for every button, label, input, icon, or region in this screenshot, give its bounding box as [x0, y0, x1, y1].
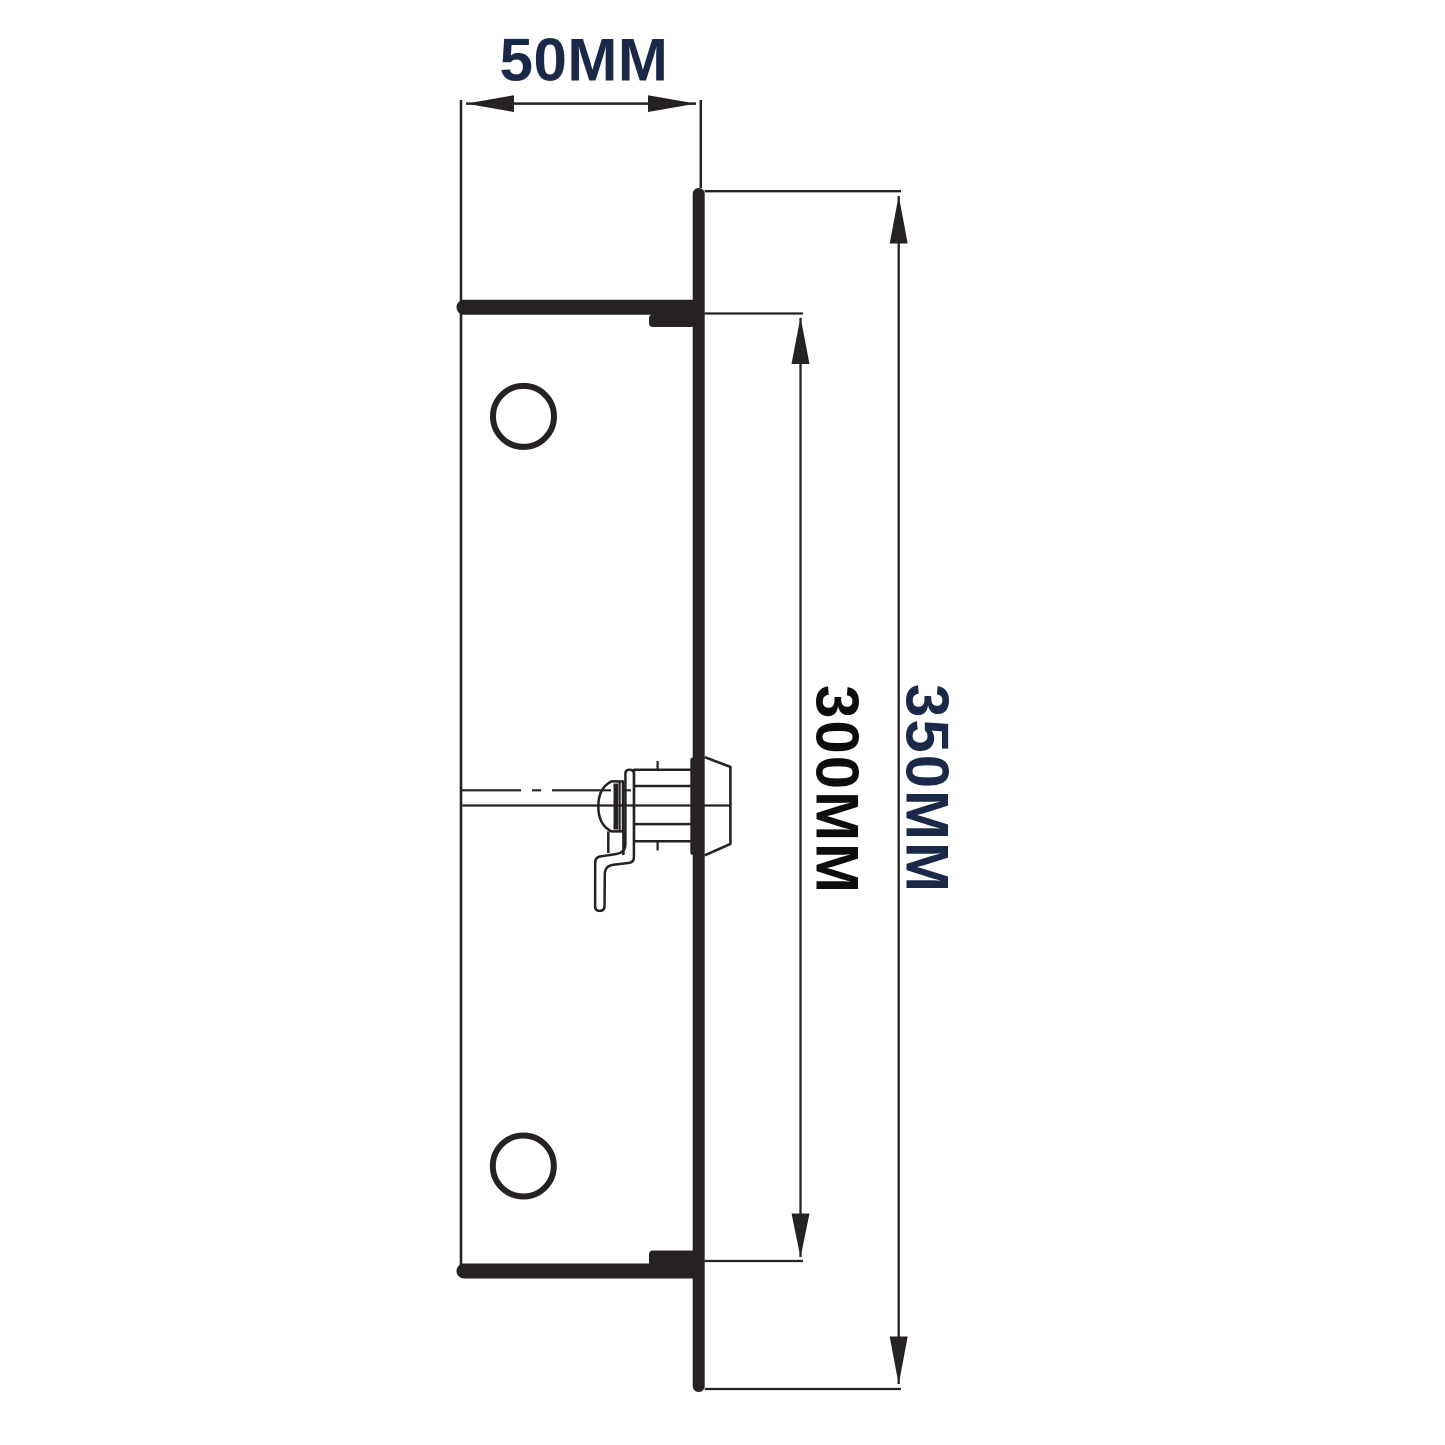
svg-text:350MM: 350MM: [894, 684, 961, 894]
svg-text:300MM: 300MM: [803, 685, 870, 895]
svg-text:50MM: 50MM: [500, 27, 669, 94]
